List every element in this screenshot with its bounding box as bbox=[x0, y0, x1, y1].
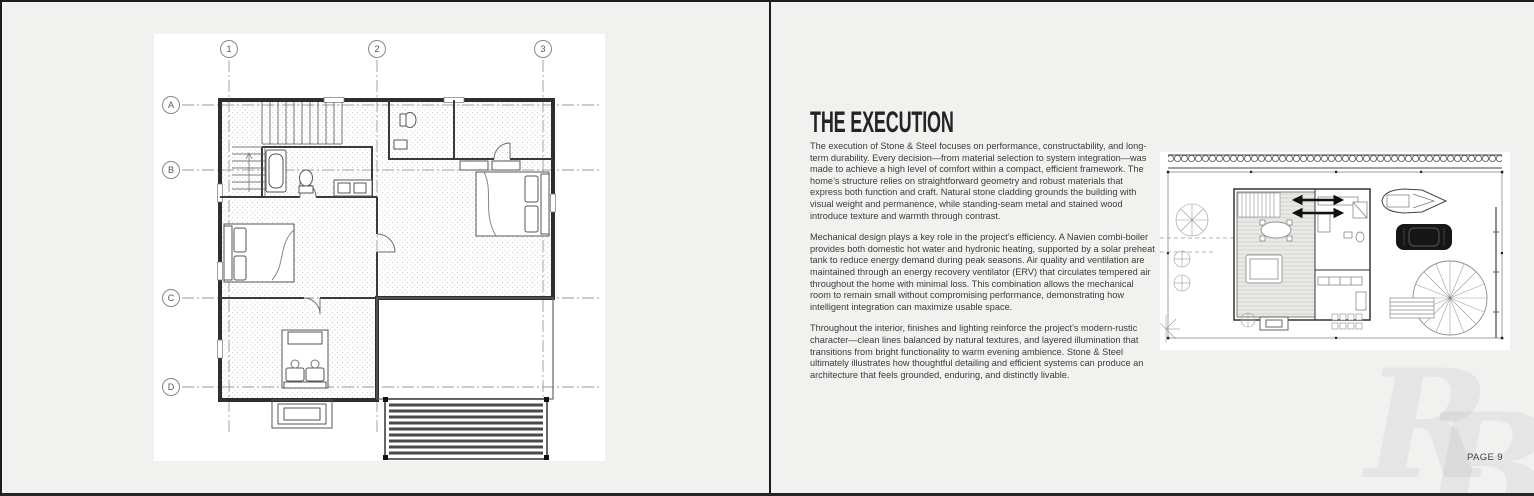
watermark-letter-r: R bbox=[1365, 350, 1490, 496]
right-page: R B THE EXECUTION The execution of Stone… bbox=[771, 2, 1534, 496]
house-stairs bbox=[1238, 193, 1280, 217]
paragraph-interior: Throughout the interior, finishes and li… bbox=[810, 323, 1157, 381]
grid-label-2: 2 bbox=[374, 44, 379, 54]
boat bbox=[1382, 189, 1446, 213]
page-number: PAGE 9 bbox=[1467, 452, 1503, 463]
grid-label-A: A bbox=[168, 100, 174, 110]
grid-label-1: 1 bbox=[226, 44, 231, 54]
car bbox=[1396, 224, 1452, 250]
bed-guest bbox=[224, 224, 294, 282]
portfolio-spread: 1 2 3 A B C D bbox=[0, 0, 1534, 496]
tree-icon bbox=[1174, 275, 1190, 291]
grid-label-B: B bbox=[168, 165, 174, 175]
paragraph-mechanical: Mechanical design plays a key role in th… bbox=[810, 232, 1157, 313]
second-floor-plan-drawing: 1 2 3 A B C D bbox=[154, 34, 605, 461]
left-page: 1 2 3 A B C D bbox=[2, 2, 769, 496]
paragraph-execution: The execution of Stone & Steel focuses o… bbox=[810, 141, 1157, 222]
grid-label-D: D bbox=[168, 382, 175, 392]
tree-icon bbox=[1174, 251, 1190, 267]
picnic-table bbox=[1390, 298, 1434, 318]
dining-table bbox=[1260, 220, 1292, 241]
shrub-burst-icon bbox=[1160, 315, 1180, 343]
terrace-steps bbox=[272, 400, 332, 428]
entry-porch bbox=[1260, 317, 1288, 330]
deck-pergola bbox=[377, 298, 553, 460]
floor-plan-image: 1 2 3 A B C D bbox=[154, 34, 605, 461]
tree-icon bbox=[1176, 204, 1208, 236]
tree-icon bbox=[1241, 313, 1255, 327]
sofa bbox=[1246, 255, 1282, 283]
bed-third bbox=[282, 330, 328, 388]
site-plan-image bbox=[1160, 152, 1510, 350]
page-title: THE EXECUTION bbox=[810, 106, 954, 140]
site-plan-drawing bbox=[1160, 152, 1510, 350]
article-body: The execution of Stone & Steel focuses o… bbox=[810, 141, 1157, 391]
hedge-row bbox=[1168, 155, 1502, 168]
toilet-icon bbox=[300, 170, 313, 186]
watermark-letter-b: B bbox=[1423, 394, 1534, 496]
grid-label-C: C bbox=[168, 293, 175, 303]
fence-line bbox=[1493, 207, 1499, 338]
driveway-lines bbox=[1160, 238, 1234, 252]
grid-label-3: 3 bbox=[540, 44, 545, 54]
